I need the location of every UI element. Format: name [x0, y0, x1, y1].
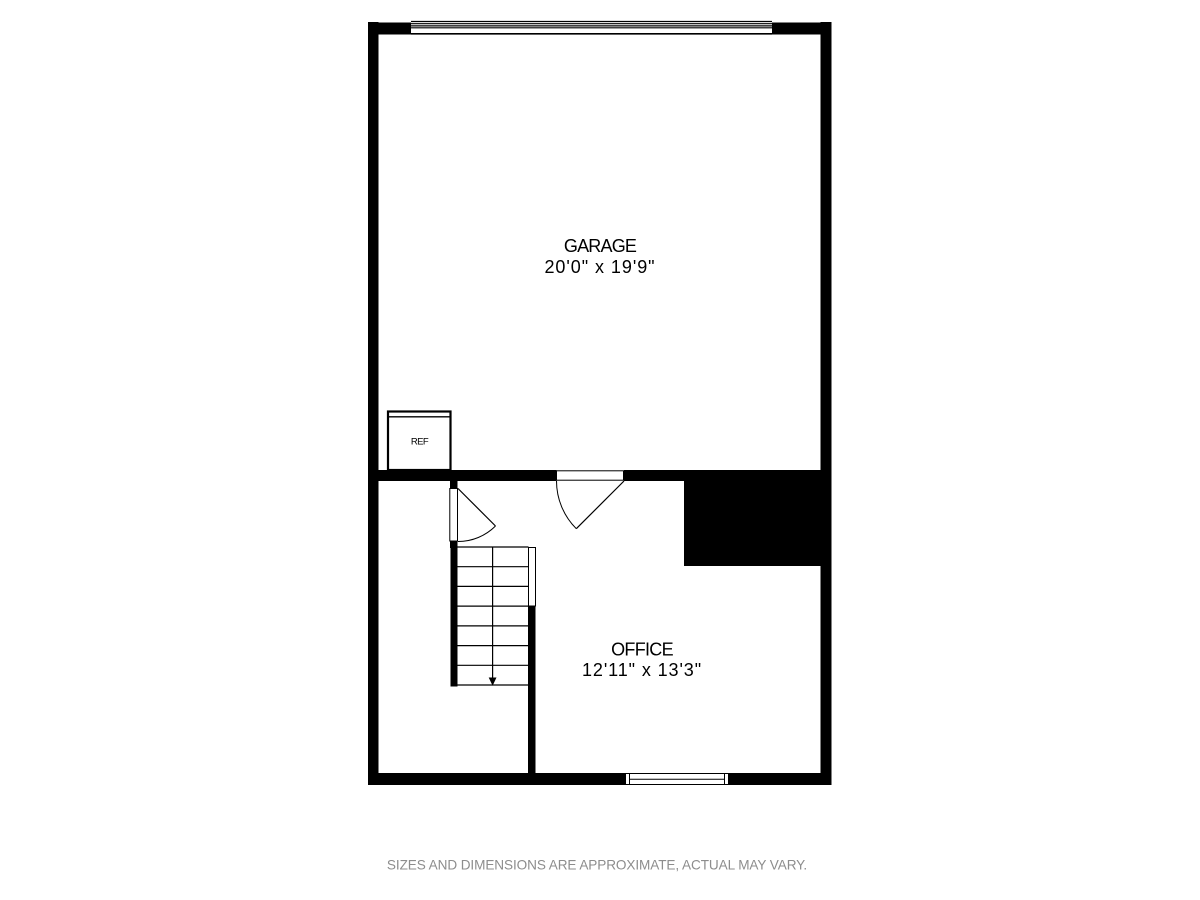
- svg-text:SIZES AND DIMENSIONS ARE APPRO: SIZES AND DIMENSIONS ARE APPROXIMATE, AC…: [387, 857, 807, 872]
- svg-text:12'11" x 13'3": 12'11" x 13'3": [582, 660, 702, 680]
- svg-text:REF: REF: [411, 437, 429, 448]
- svg-text:GARAGE: GARAGE: [564, 236, 637, 256]
- svg-text:OFFICE: OFFICE: [611, 640, 673, 660]
- svg-text:20'0" x 19'9": 20'0" x 19'9": [544, 257, 655, 277]
